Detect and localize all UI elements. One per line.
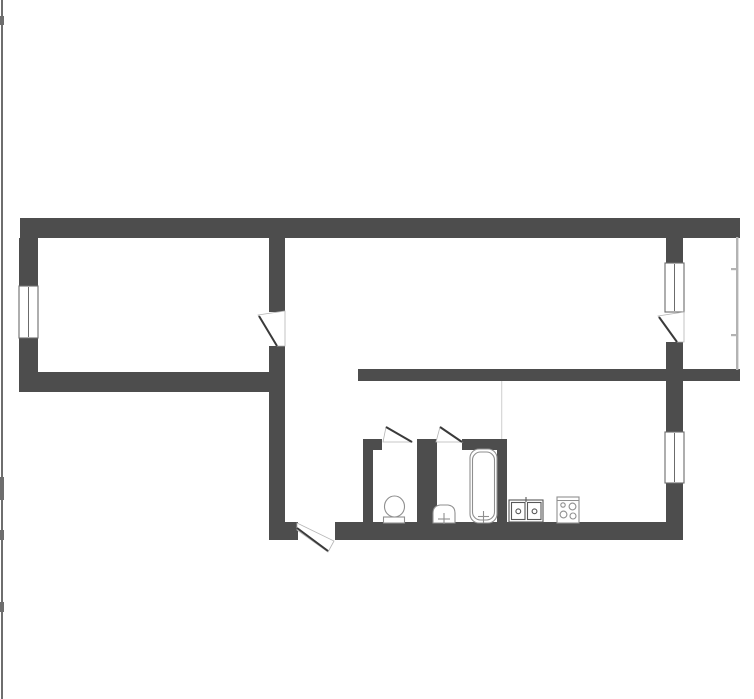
floor-plan-page (0, 0, 754, 699)
page-edge-tick-1 (0, 16, 4, 25)
bottom-wall-main-wall (335, 522, 683, 540)
bath-right-wall-wall (497, 446, 507, 523)
balcony-tick-lower (731, 334, 737, 336)
left-middle-divider-lower-wall (269, 346, 285, 540)
kitchen-right-wall-upper-wall (666, 381, 683, 432)
plan-background (0, 0, 754, 699)
floor-plan-drawing (0, 0, 754, 699)
balcony-outer-line (736, 237, 738, 370)
outer-left-wall-upper-wall (19, 238, 38, 286)
wc-top-stub-wall (363, 439, 382, 450)
balcony-partition-lower-wall (666, 342, 683, 369)
left-middle-divider-upper-wall (269, 238, 285, 312)
wc-left-wall-wall (363, 439, 373, 523)
balcony-partition-upper-wall (666, 238, 683, 263)
outer-top-wall-wall (20, 218, 740, 238)
kitchen-sink-fixture-part-0 (509, 500, 543, 522)
page-edge-tick-3 (0, 530, 4, 540)
toilet-fixture-part-0 (384, 517, 405, 523)
balcony-tick-upper (731, 268, 737, 270)
page-edge-line (1, 0, 3, 699)
left-room-bottom-wall-wall (19, 372, 285, 392)
middle-horizontal-wall-wall (358, 369, 740, 381)
kitchen-hall-boundary-line (501, 381, 502, 439)
page-edge-tick-2 (0, 477, 4, 500)
toilet-fixture-part-1 (385, 496, 405, 517)
hall-bottom-wall-foot-wall (269, 522, 298, 540)
page-edge-tick-4 (0, 602, 4, 612)
